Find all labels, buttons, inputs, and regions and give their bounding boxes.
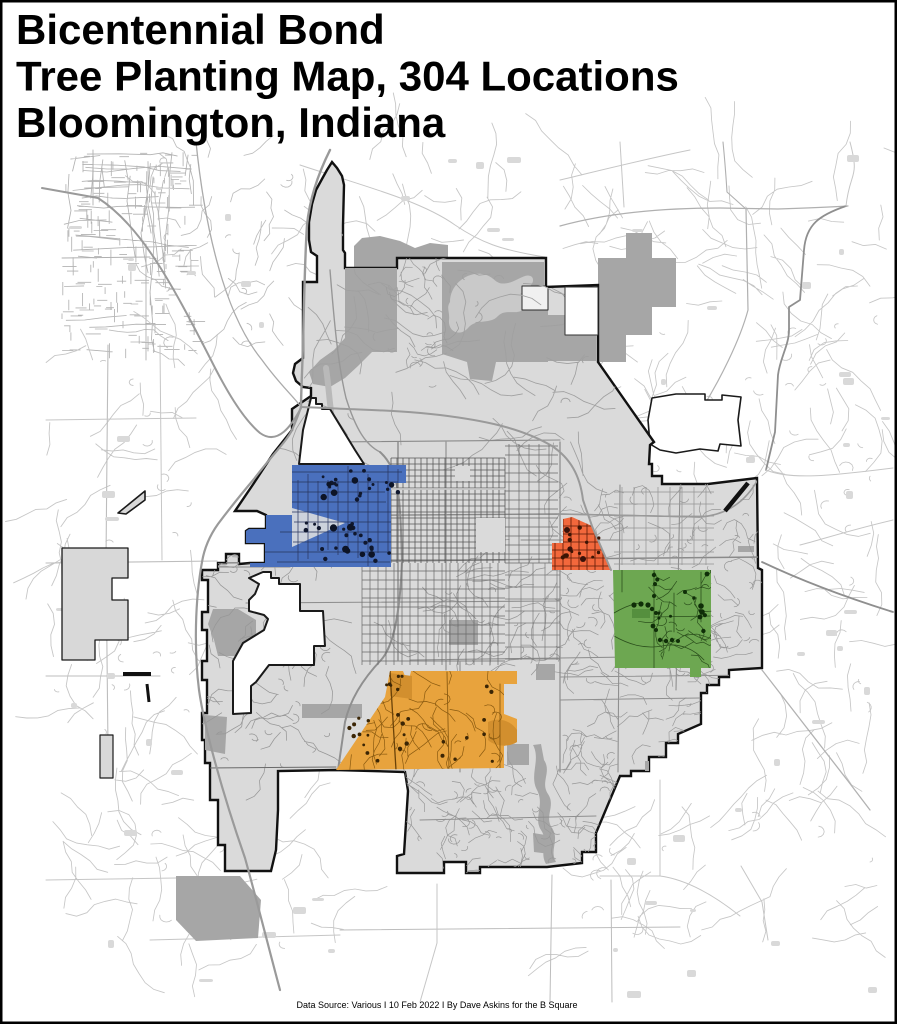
svg-text:Tree Planting Map, 304 Locatio: Tree Planting Map, 304 Locations <box>16 53 679 100</box>
svg-text:Bicentennial Bond: Bicentennial Bond <box>16 6 385 53</box>
svg-text:Bloomington, Indiana: Bloomington, Indiana <box>16 99 446 146</box>
svg-text:Data Source: Various I 10 Feb: Data Source: Various I 10 Feb 2022 I By … <box>297 1000 578 1010</box>
